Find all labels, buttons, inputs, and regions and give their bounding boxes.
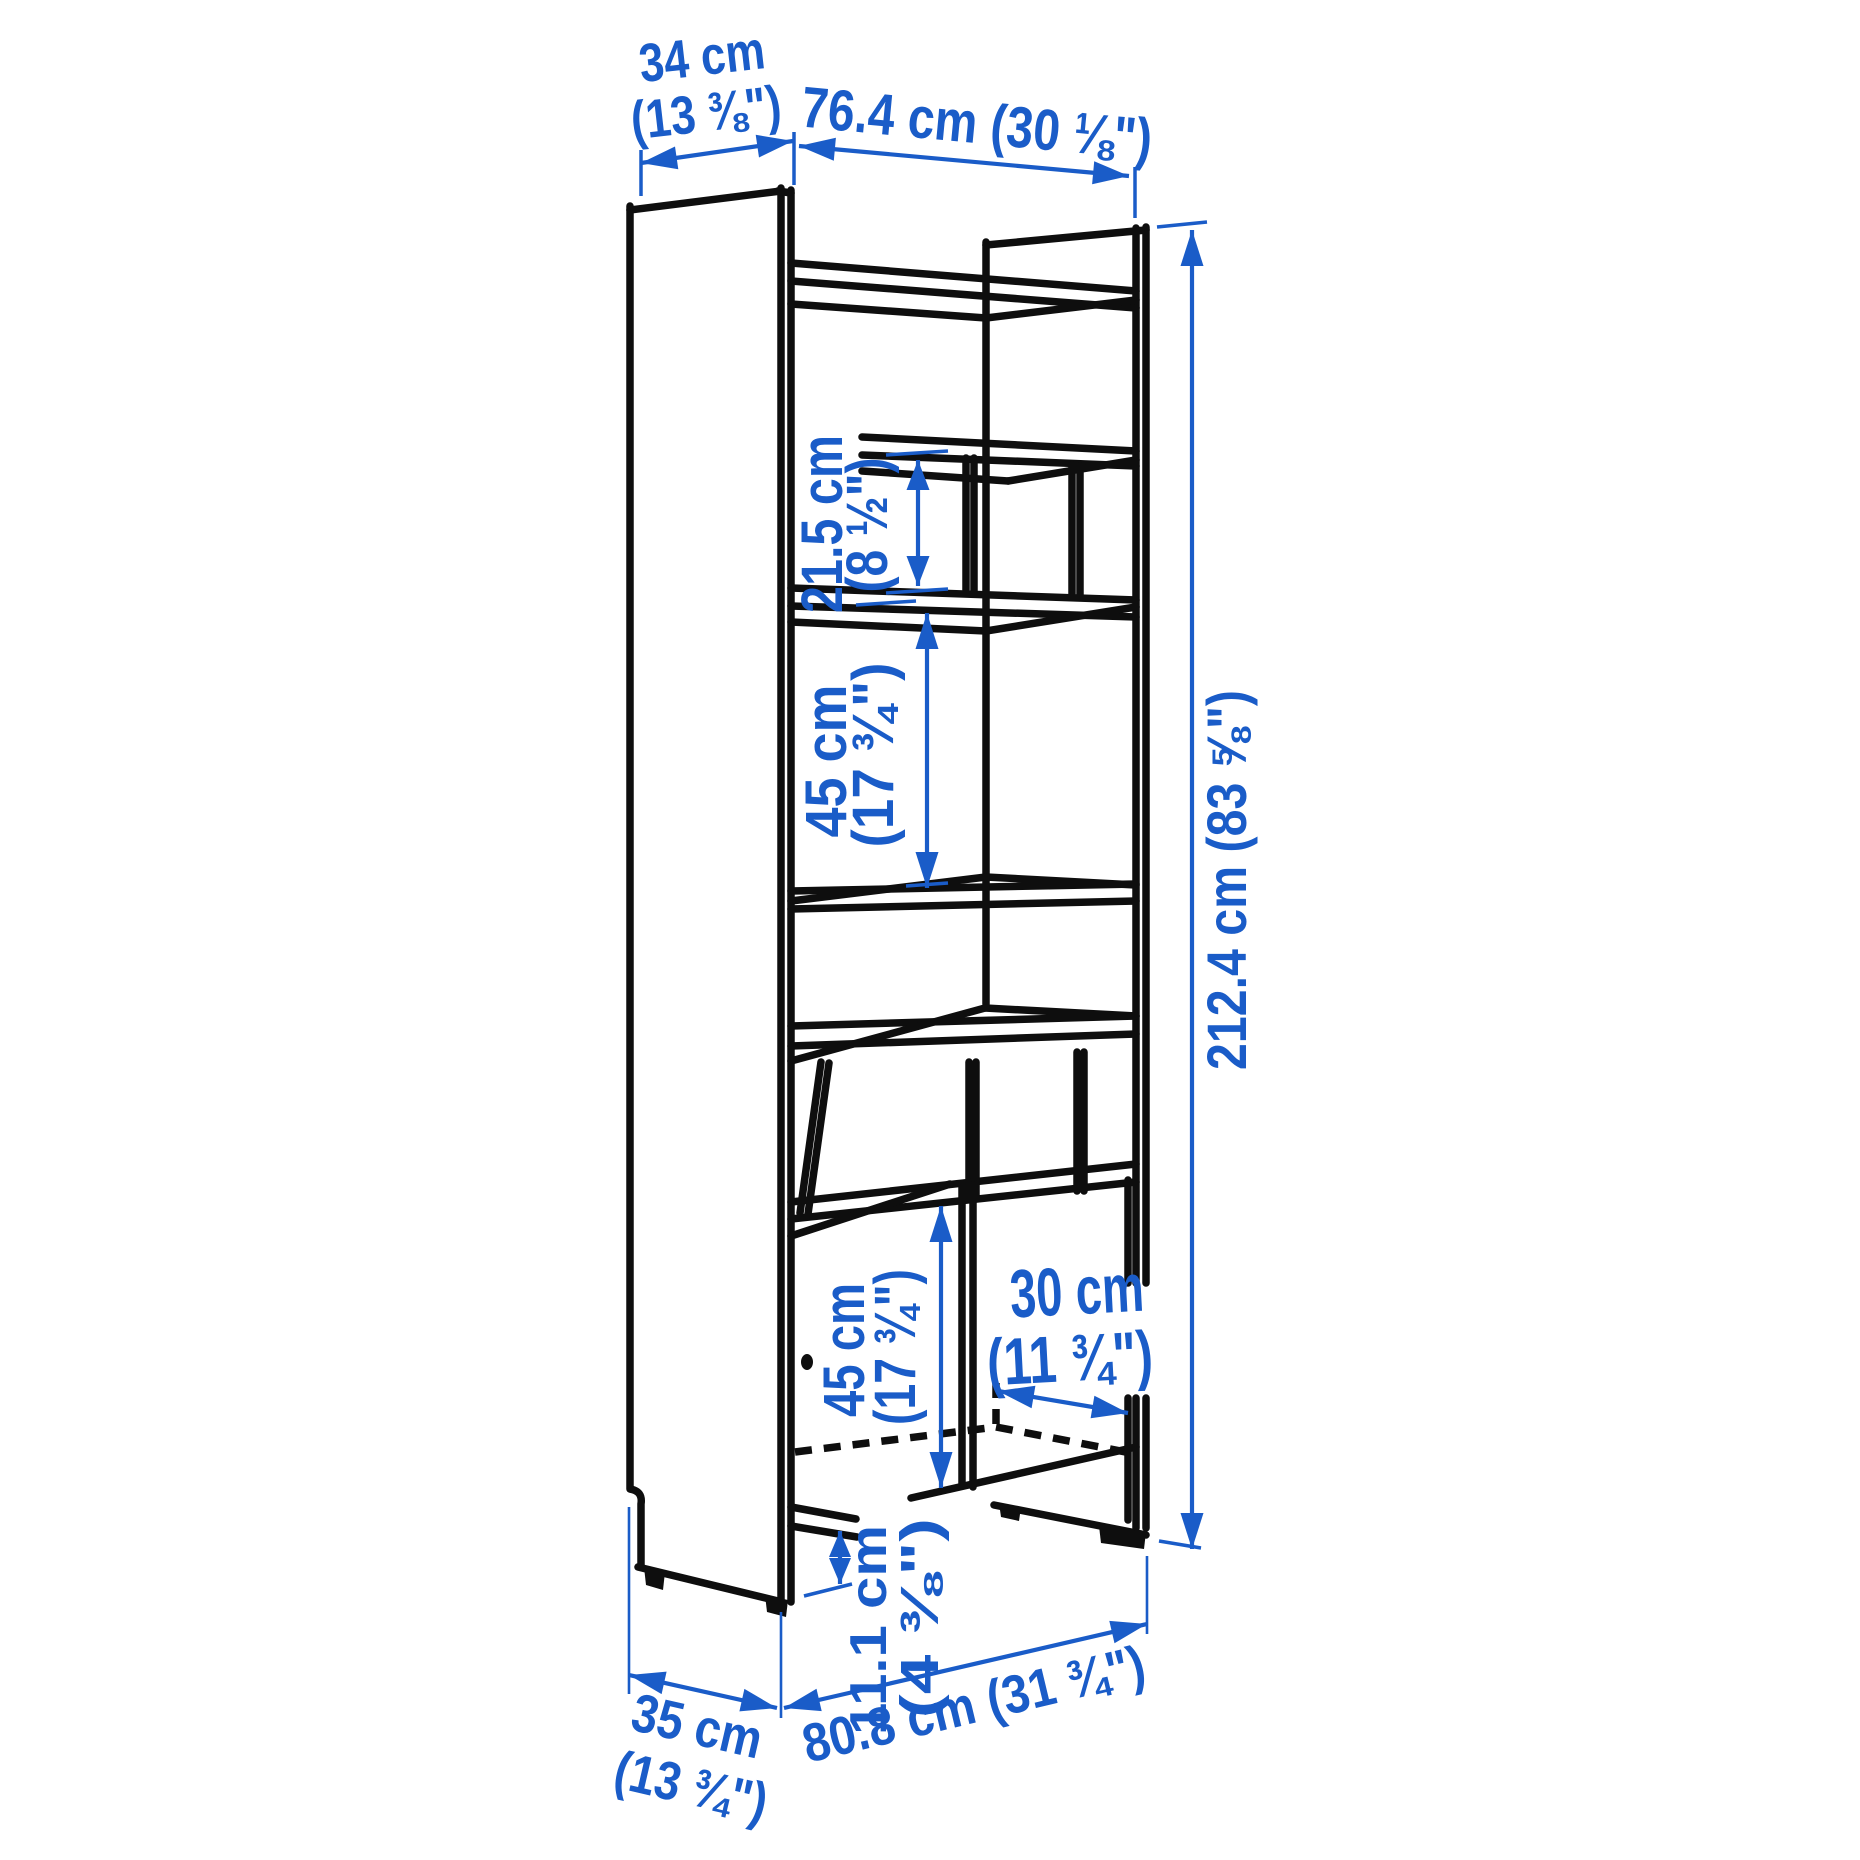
svg-text:(17 ¾"): (17 ¾") bbox=[841, 663, 906, 848]
svg-text:(11 ¾"): (11 ¾") bbox=[985, 1317, 1155, 1400]
svg-text:(17 ¾"): (17 ¾") bbox=[863, 1269, 928, 1425]
svg-text:(8 ½"): (8 ½") bbox=[835, 458, 900, 593]
svg-text:212.4 cm (83 ⅝"): 212.4 cm (83 ⅝") bbox=[1195, 690, 1258, 1070]
